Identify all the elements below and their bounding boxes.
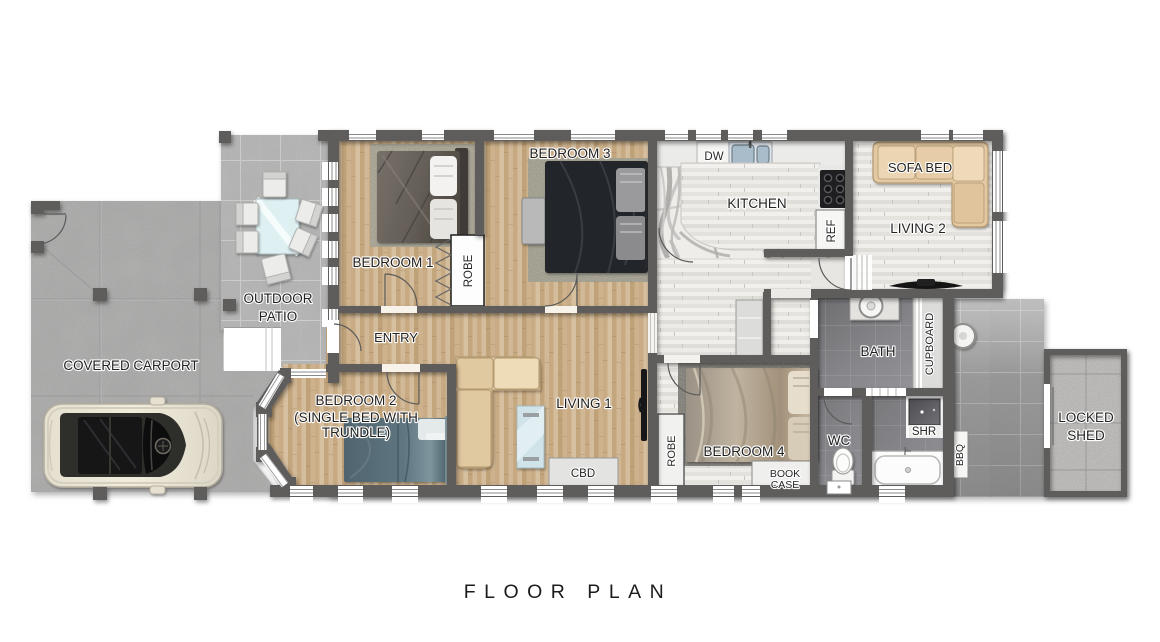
svg-text:DW: DW <box>704 151 723 163</box>
svg-text:SOFA BED: SOFA BED <box>888 160 952 175</box>
svg-text:PATIO: PATIO <box>259 309 298 324</box>
svg-text:ENTRY: ENTRY <box>374 330 418 345</box>
svg-text:BEDROOM 4: BEDROOM 4 <box>703 444 785 459</box>
svg-text:CBD: CBD <box>571 468 595 480</box>
svg-text:BEDROOM 2: BEDROOM 2 <box>315 393 396 408</box>
svg-text:OUTDOOR: OUTDOOR <box>244 291 313 306</box>
svg-text:COVERED CARPORT: COVERED CARPORT <box>63 358 198 373</box>
svg-text:REF: REF <box>826 220 838 243</box>
svg-text:BBQ: BBQ <box>954 444 966 466</box>
svg-text:CASE: CASE <box>771 479 800 491</box>
svg-text:SHED: SHED <box>1067 428 1105 443</box>
svg-text:(SINGLE BED WITH: (SINGLE BED WITH <box>294 410 418 425</box>
svg-text:ROBE: ROBE <box>666 435 678 466</box>
svg-text:TRUNDLE): TRUNDLE) <box>322 425 390 440</box>
svg-text:KITCHEN: KITCHEN <box>727 196 786 211</box>
svg-text:LIVING 1: LIVING 1 <box>556 396 612 411</box>
svg-text:BEDROOM 1: BEDROOM 1 <box>352 255 433 270</box>
svg-text:SHR: SHR <box>912 426 936 438</box>
svg-text:ROBE: ROBE <box>463 254 475 287</box>
svg-text:FLOOR PLAN: FLOOR PLAN <box>464 581 673 603</box>
svg-text:LIVING 2: LIVING 2 <box>890 221 946 236</box>
svg-text:BEDROOM 3: BEDROOM 3 <box>529 146 610 161</box>
svg-text:LOCKED: LOCKED <box>1058 410 1114 425</box>
svg-text:WC: WC <box>828 433 851 448</box>
svg-text:CUPBOARD: CUPBOARD <box>924 313 936 375</box>
svg-text:BATH: BATH <box>860 344 895 359</box>
